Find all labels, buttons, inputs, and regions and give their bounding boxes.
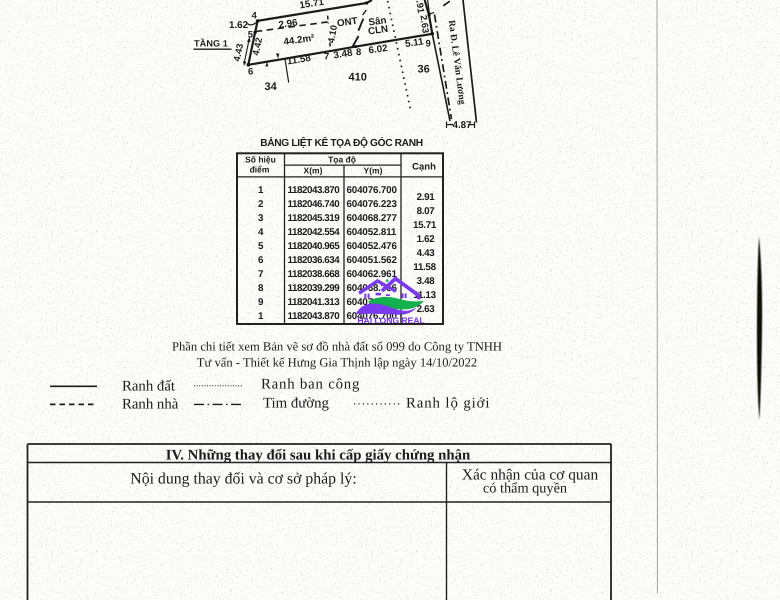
svg-text:1182042.554: 1182042.554: [288, 227, 341, 238]
svg-text:1182041.313: 1182041.313: [288, 297, 341, 308]
svg-text:1182043.870: 1182043.870: [288, 311, 341, 322]
svg-text:1182039.299: 1182039.299: [288, 283, 341, 294]
svg-text:9: 9: [426, 39, 431, 50]
svg-text:Y(m): Y(m): [364, 165, 383, 175]
svg-text:8: 8: [356, 47, 361, 58]
svg-text:3.48: 3.48: [417, 276, 436, 287]
svg-text:604076.700: 604076.700: [347, 185, 398, 196]
svg-text:36: 36: [418, 64, 430, 76]
svg-text:Ranh lộ giới: Ranh lộ giới: [406, 396, 490, 412]
svg-text:1182036.634: 1182036.634: [288, 255, 341, 266]
svg-text:4.87: 4.87: [453, 120, 473, 131]
svg-text:Ranh đất: Ranh đất: [122, 379, 176, 395]
svg-text:Tọa độ: Tọa độ: [328, 154, 356, 164]
svg-text:1.62: 1.62: [229, 20, 249, 31]
svg-text:2.91: 2.91: [417, 192, 436, 203]
svg-text:TẦNG 1: TẦNG 1: [194, 38, 228, 49]
svg-text:IV. Những thay đổi sau khi cấp: IV. Những thay đổi sau khi cấp giấy chứn…: [166, 448, 471, 464]
svg-text:1182045.319: 1182045.319: [288, 213, 341, 224]
svg-text:7: 7: [324, 52, 329, 63]
svg-text:604062.961: 604062.961: [347, 269, 398, 280]
svg-text:1182040.965: 1182040.965: [288, 241, 341, 252]
svg-text:Cạnh: Cạnh: [412, 162, 436, 173]
svg-text:Ranh ban công: Ranh ban công: [261, 377, 360, 393]
svg-text:15.71: 15.71: [413, 220, 437, 231]
svg-text:có thẩm quyền: có thẩm quyền: [483, 481, 567, 497]
svg-text:604052.476: 604052.476: [347, 241, 398, 252]
svg-text:8.07: 8.07: [417, 206, 436, 217]
svg-text:604076.223: 604076.223: [347, 199, 398, 210]
svg-text:1182038.668: 1182038.668: [288, 269, 341, 280]
svg-text:1.62: 1.62: [417, 234, 436, 245]
svg-text:604051.562: 604051.562: [347, 255, 398, 266]
svg-text:4: 4: [252, 11, 258, 22]
svg-text:X(m): X(m): [304, 165, 323, 175]
svg-text:Nội dung thay đổi và cơ sở phá: Nội dung thay đổi và cơ sở pháp lý:: [130, 471, 356, 488]
svg-text:Phần chi tiết xem Bản vẽ sơ đồ: Phần chi tiết xem Bản vẽ sơ đồ nhà đất s…: [172, 340, 502, 354]
svg-text:6: 6: [248, 67, 253, 78]
svg-text:Tim đường: Tim đường: [263, 396, 329, 412]
svg-text:Ranh nhà: Ranh nhà: [122, 397, 179, 413]
svg-text:BẢNG LIỆT KÊ TỌA ĐỘ GÓC RANH: BẢNG LIỆT KÊ TỌA ĐỘ GÓC RANH: [260, 136, 422, 149]
svg-text:604052.811: 604052.811: [347, 227, 397, 238]
svg-text:Số hiệu: Số hiệu: [245, 155, 276, 165]
svg-text:604068.277: 604068.277: [347, 213, 398, 224]
svg-text:1182046.740: 1182046.740: [288, 199, 341, 210]
svg-text:4.43: 4.43: [417, 248, 436, 259]
svg-text:34: 34: [265, 81, 278, 93]
svg-text:điểm: điểm: [250, 165, 270, 175]
svg-text:410: 410: [349, 72, 367, 84]
svg-text:11.58: 11.58: [413, 262, 436, 273]
svg-text:Tư vấn - Thiết kế Hưng Gia Thị: Tư vấn - Thiết kế Hưng Gia Thịnh lập ngà…: [197, 356, 477, 370]
svg-text:2.63: 2.63: [417, 304, 436, 315]
svg-text:1182043.870: 1182043.870: [288, 185, 341, 196]
